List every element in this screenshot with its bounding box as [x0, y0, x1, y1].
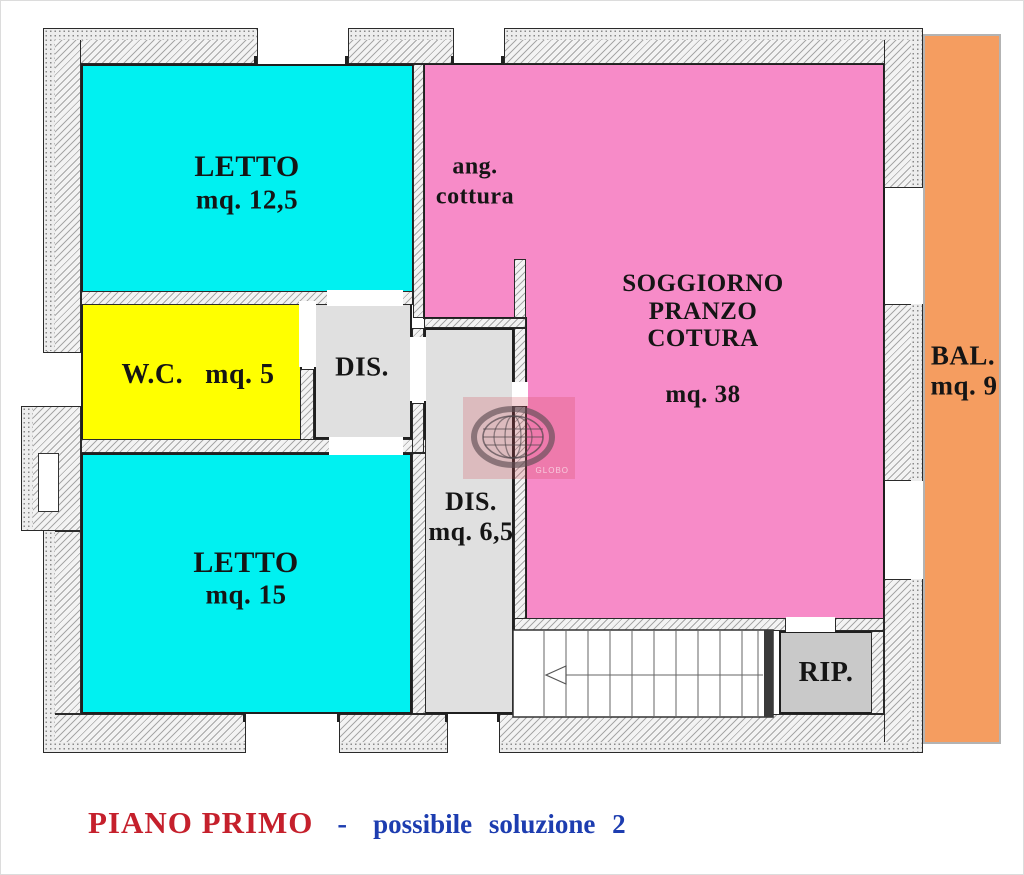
label-rip-name: RIP. [799, 657, 854, 689]
wall-outer-band [44, 29, 256, 40]
door-opening [329, 437, 403, 455]
label-letto1-area: mq. 12,5 [196, 185, 298, 216]
wall-interior [871, 631, 884, 714]
caption-separator: - [337, 808, 347, 841]
label-wc-area: mq. 5 [205, 359, 274, 390]
wall-outer-band [44, 742, 245, 752]
label-dis2-name: DIS. [445, 487, 497, 517]
door-opening [410, 337, 426, 401]
wall-outer-band [340, 742, 447, 752]
wall-outer-band [500, 742, 922, 752]
door-opening [327, 290, 403, 306]
label-bal-area: mq. 9 [930, 371, 997, 402]
wall-interior [81, 291, 329, 305]
window-jamb [243, 714, 246, 722]
label-soggiorno-line3: COTURA [647, 325, 758, 353]
door-opening [786, 617, 835, 632]
window-jamb [337, 714, 340, 722]
wall-interior [835, 618, 884, 631]
window-jamb [497, 714, 500, 722]
wall-interior [514, 259, 526, 318]
window-opening [886, 188, 923, 304]
label-soggiorno-area: mq. 38 [665, 381, 740, 409]
wall-outer-band [911, 579, 922, 752]
label-soggiorno-line1: SOGGIORNO [622, 270, 783, 298]
wall-interior [514, 328, 526, 384]
wall-outer-band [911, 29, 922, 187]
label-bal-name: BAL. [931, 341, 995, 372]
label-ang-cottura-line1: ang. [452, 154, 497, 181]
caption-title: PIANO PRIMO [88, 805, 313, 841]
window-opening [886, 481, 923, 579]
bay-window [38, 453, 59, 512]
label-soggiorno-line2: PRANZO [649, 298, 758, 326]
label-letto2-name: LETTO [193, 546, 298, 580]
watermark-text: GLOBO [536, 466, 569, 475]
wall-interior [413, 64, 424, 318]
staircase [512, 629, 774, 718]
label-letto2-area: mq. 15 [205, 580, 286, 611]
label-ang-cottura-line2: cottura [436, 184, 514, 211]
floor-plan-canvas: LETTO mq. 12,5 ang. cottura W.C.mq. 5 DI… [0, 0, 1024, 875]
label-letto1-name: LETTO [194, 150, 299, 184]
wall-interior [300, 369, 314, 444]
wall-interior [412, 403, 424, 453]
window-jamb [501, 56, 504, 64]
wall-outer-band [911, 304, 922, 481]
door-opening [299, 301, 316, 367]
wall-outer-band [44, 531, 55, 743]
wall-outer-band [349, 29, 453, 40]
wall-outer-band [22, 407, 33, 529]
agency-watermark-logo: GLOBO [463, 397, 575, 479]
wall-interior [412, 453, 426, 714]
label-wc: W.C.mq. 5 [121, 359, 274, 391]
window-jamb [254, 56, 257, 64]
wall-outer-band [505, 29, 922, 40]
window-jamb [445, 714, 448, 722]
wall-interior [424, 318, 526, 328]
wall-interior [81, 439, 331, 453]
window-jamb [451, 56, 454, 64]
wall-outer-band [44, 29, 55, 351]
label-dis1-name: DIS. [335, 352, 389, 383]
label-wc-name: W.C. [121, 359, 183, 390]
caption-subtitle: possibile soluzione 2 [373, 809, 626, 840]
label-dis2-area: mq. 6,5 [428, 517, 513, 547]
caption: PIANO PRIMO - possibile soluzione 2 [88, 805, 626, 841]
window-jamb [345, 56, 348, 64]
